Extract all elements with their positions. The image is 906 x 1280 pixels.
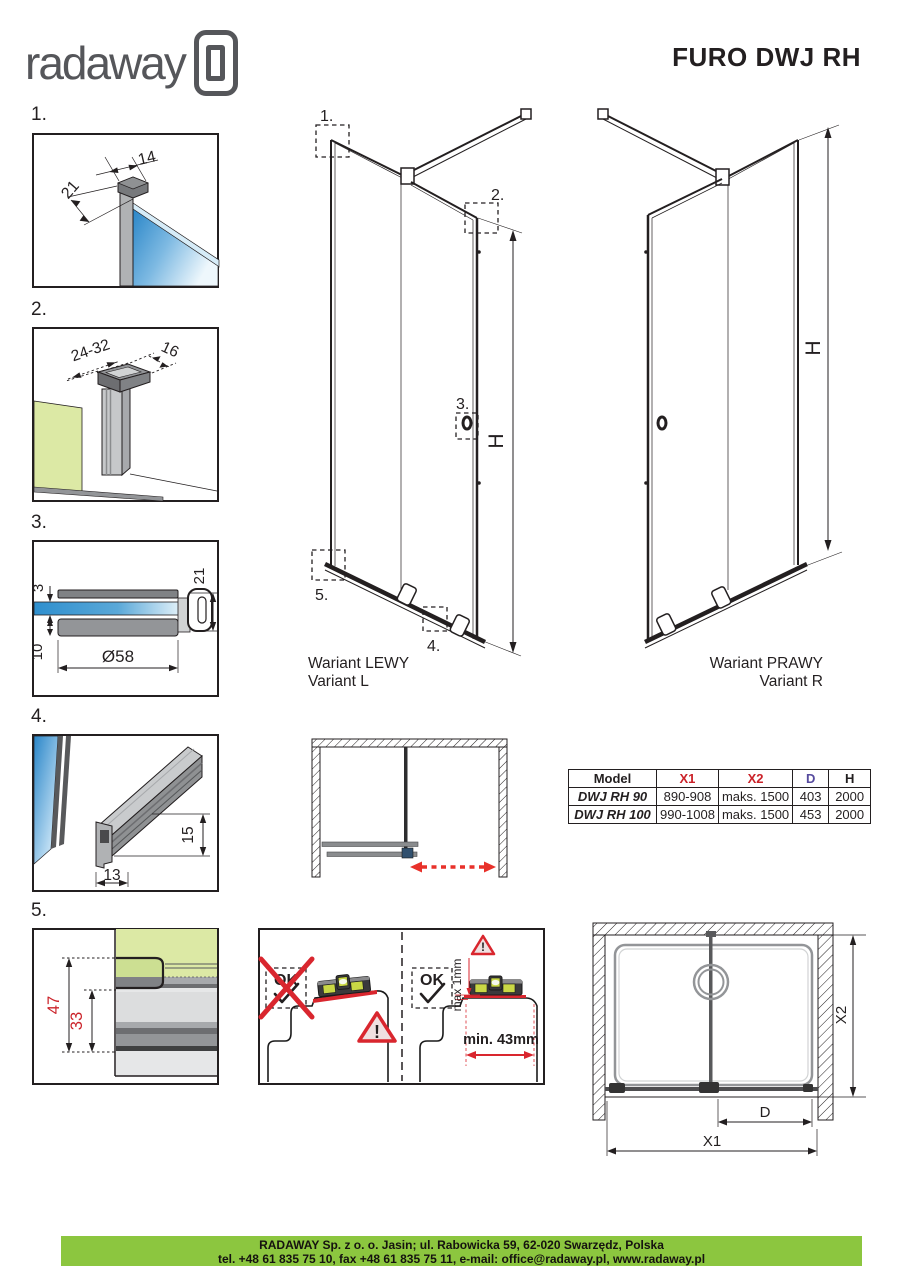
bottom-rail-graphic [645,564,807,648]
table-row: DWJ RH 100 990-1008 maks. 1500 453 2000 [569,806,871,824]
door-handle-graphic [463,417,471,429]
callout-4-label: 4. [427,638,440,655]
callout-3-label: 3. [456,396,469,413]
slide-direction-arrow [410,862,496,873]
max-1mm-label: max 1mm [450,959,464,1012]
detail-1-figure: 14 21 [32,133,219,288]
d-label: D [760,1104,771,1121]
cell-x2: maks. 1500 [718,788,792,806]
x2-label: X2 [833,1006,850,1024]
cell-d: 403 [793,788,829,806]
d-dimension: D [718,1099,812,1127]
col-h: H [829,770,871,788]
variant-right-caption-pl: Wariant PRAWY [623,655,823,673]
variant-left-caption-en: Variant L [308,673,409,691]
datasheet-page: radaway FURO DWJ RH 1. 2. 3. 4. 5. [0,0,906,1280]
page-title: FURO DWJ RH [672,42,861,73]
min-43mm-label: min. 43mm [463,1032,539,1048]
section-graphic [115,929,217,1076]
glass-panel-graphic [34,602,186,615]
footer-address: RADAWAY Sp. z o. o. Jasin; ul. Rabowicka… [61,1238,862,1252]
dim-21b-label: 21 [191,568,208,585]
height-label: H [485,433,508,448]
cell-x1: 990-1008 [657,806,719,824]
variant-left-caption-pl: Wariant LEWY [308,655,409,673]
detail-1-label: 1. [31,104,47,126]
brand-wordmark: radaway [25,30,185,96]
height-dimension: H [799,125,842,565]
detail-5-figure: 47 33 [32,928,219,1085]
lower-plate-graphic [58,619,178,636]
cell-x1: 890-908 [657,788,719,806]
table-row: DWJ RH 90 890-908 maks. 1500 403 2000 [569,788,871,806]
callout-1-label: 1. [320,108,333,125]
plan-view-drawing [300,730,515,885]
installation-figure: OK ! OK [258,928,545,1085]
callout-2: 2. [465,187,504,233]
door-handle-graphic [658,417,666,429]
door-panel-graphic [644,179,728,640]
upper-plate-graphic [58,590,178,598]
detail-4-label: 4. [31,706,47,728]
wall-graphic [34,401,82,495]
fixed-panel-graphic [723,140,798,590]
support-bar-graphic [598,109,729,185]
callout-5-label: 5. [315,587,328,604]
spec-table: Model X1 X2 D H DWJ RH 90 890-908 maks. … [568,769,871,824]
brand-mark-icon [194,30,238,96]
dim-47-label: 47 [45,996,63,1014]
detail-3-label: 3. [31,512,47,534]
variant-right-caption-en: Variant R [623,673,823,691]
footer-bar: RADAWAY Sp. z o. o. Jasin; ul. Rabowicka… [61,1236,862,1266]
cell-d: 453 [793,806,829,824]
dim-13-label: 13 [103,867,120,884]
front-view-drawing: X2 D X1 [585,915,906,1165]
col-x2: X2 [718,770,792,788]
detail-2-label: 2. [31,299,47,321]
cell-model: DWJ RH 90 [569,788,657,806]
dim-10-label: 10 [29,644,46,661]
height-dimension: H [478,218,522,656]
bottom-rail-graphic [325,564,485,648]
support-bar-graphic [401,109,531,184]
warning-mark: ! [481,940,485,954]
dim-3-label: 3 [30,584,47,592]
detail-4-figure: 15 13 [32,734,219,892]
col-model: Model [569,770,657,788]
cell-h: 2000 [829,806,871,824]
dim-58-label: Ø58 [102,647,134,666]
variant-left-caption: Wariant LEWY Variant L [308,655,409,691]
variant-right-drawing: H [590,108,906,700]
dim-33-label: 33 [68,1012,86,1030]
detail-3-figure: 3 10 Ø58 21 [32,540,219,697]
fixed-panel-graphic [331,140,408,598]
callout-2-label: 2. [491,187,504,204]
radaway-logo: radaway [25,30,238,96]
variant-right-caption: Wariant PRAWY Variant R [623,655,823,691]
height-label: H [802,340,825,355]
cell-x2: maks. 1500 [718,806,792,824]
cell-h: 2000 [829,788,871,806]
variant-left-drawing: 1. 2. 3. 5. 4. H [295,108,595,700]
warning-mark: ! [374,1022,380,1042]
table-header-row: Model X1 X2 D H [569,770,871,788]
col-x1: X1 [657,770,719,788]
x1-label: X1 [703,1133,721,1150]
fixed-panel-plan-graphic [404,747,408,853]
dim-15-label: 15 [180,826,197,843]
detail-2-figure: 24-32 16 [32,327,219,502]
cell-model: DWJ RH 100 [569,806,657,824]
callout-1: 1. [316,108,349,157]
x1-dimension: X1 [607,1101,817,1156]
detail-5-label: 5. [31,900,47,922]
footer-contact: tel. +48 61 835 75 10, fax +48 61 835 75… [61,1252,862,1266]
col-d: D [793,770,829,788]
door-plan-graphic [322,842,418,858]
